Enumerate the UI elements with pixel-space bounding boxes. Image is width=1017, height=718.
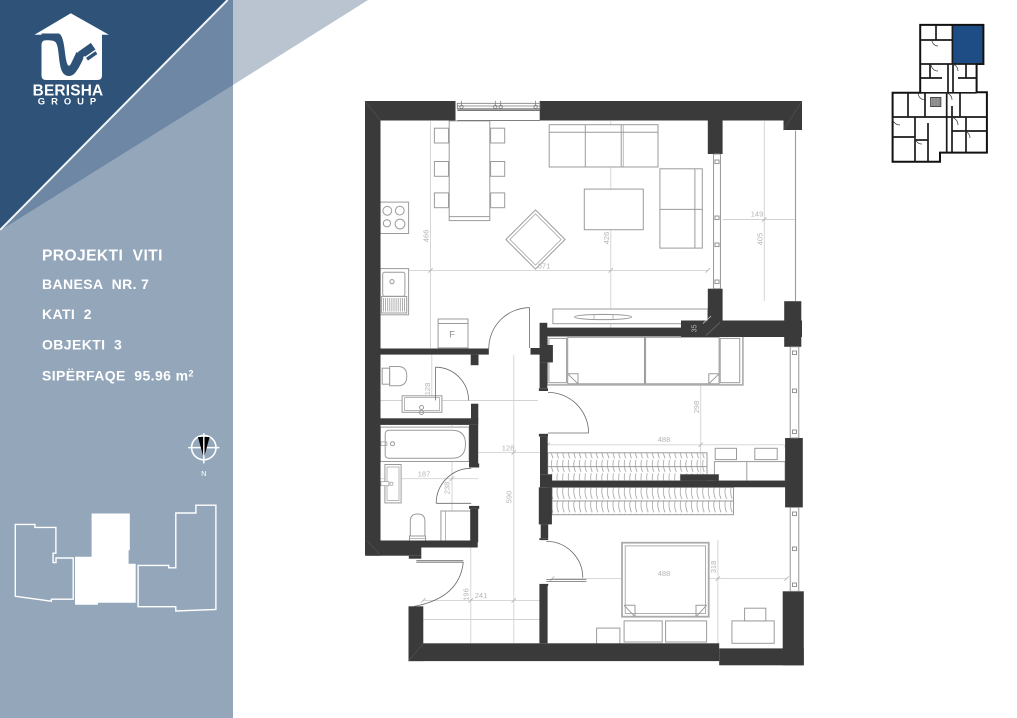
svg-text:BANESA NR. 7: BANESA NR. 7 <box>42 276 149 292</box>
svg-text:SIPËRFAQE 95.96 m2: SIPËRFAQE 95.96 m2 <box>42 368 194 384</box>
svg-text:196: 196 <box>461 588 470 601</box>
svg-text:298: 298 <box>692 401 701 414</box>
svg-text:590: 590 <box>505 491 514 504</box>
svg-text:PROJEKTI VITI: PROJEKTI VITI <box>42 248 163 265</box>
svg-text:OBJEKTI 3: OBJEKTI 3 <box>42 336 122 352</box>
svg-text:466: 466 <box>422 230 431 243</box>
svg-text:F: F <box>449 330 455 341</box>
svg-text:KATI 2: KATI 2 <box>42 306 92 322</box>
svg-text:405: 405 <box>756 233 765 246</box>
svg-text:488: 488 <box>658 569 671 578</box>
svg-text:238: 238 <box>443 482 452 495</box>
svg-text:128: 128 <box>502 444 515 453</box>
svg-text:671: 671 <box>538 262 551 271</box>
svg-text:488: 488 <box>658 435 671 444</box>
svg-text:GROUP: GROUP <box>38 96 102 107</box>
svg-text:N: N <box>201 469 206 478</box>
svg-text:318: 318 <box>709 561 718 574</box>
svg-text:426: 426 <box>602 232 611 245</box>
svg-text:128: 128 <box>423 383 432 396</box>
svg-text:35: 35 <box>692 325 699 333</box>
svg-text:187: 187 <box>418 469 431 478</box>
svg-text:241: 241 <box>475 591 488 600</box>
svg-text:149: 149 <box>751 210 764 219</box>
